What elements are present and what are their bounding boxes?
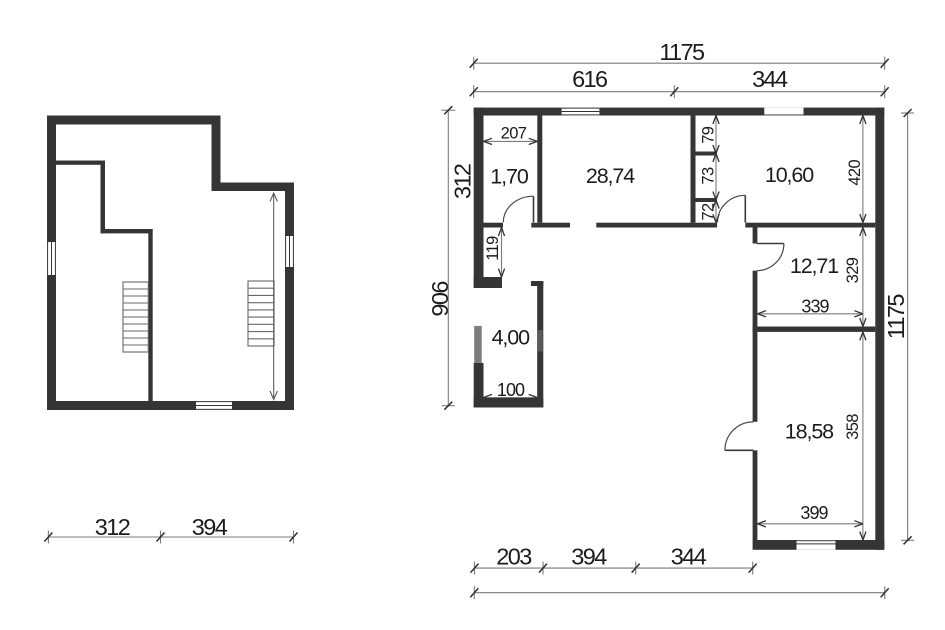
- svg-text:312: 312: [450, 164, 476, 199]
- svg-text:344: 344: [671, 543, 707, 569]
- svg-text:394: 394: [192, 514, 228, 540]
- svg-text:18,58: 18,58: [785, 419, 834, 443]
- svg-text:358: 358: [844, 414, 862, 440]
- svg-text:906: 906: [427, 281, 453, 317]
- svg-text:420: 420: [846, 160, 864, 186]
- svg-text:1,70: 1,70: [490, 164, 529, 188]
- svg-text:616: 616: [572, 66, 608, 92]
- svg-text:329: 329: [844, 257, 862, 283]
- svg-text:207: 207: [501, 124, 527, 142]
- svg-text:119: 119: [484, 236, 502, 261]
- svg-text:72: 72: [700, 203, 718, 221]
- svg-text:344: 344: [752, 66, 788, 92]
- svg-text:100: 100: [497, 380, 525, 400]
- svg-text:394: 394: [571, 543, 607, 569]
- svg-text:79: 79: [700, 126, 718, 144]
- svg-text:12,71: 12,71: [790, 254, 838, 278]
- svg-text:339: 339: [801, 296, 829, 316]
- svg-text:399: 399: [800, 503, 828, 523]
- svg-text:4,00: 4,00: [492, 325, 531, 349]
- svg-text:73: 73: [700, 167, 718, 185]
- svg-text:1175: 1175: [659, 39, 705, 65]
- svg-text:203: 203: [496, 543, 532, 569]
- svg-text:1175: 1175: [883, 294, 909, 340]
- svg-text:28,74: 28,74: [586, 164, 635, 188]
- svg-text:10,60: 10,60: [765, 163, 814, 187]
- svg-text:312: 312: [95, 514, 130, 540]
